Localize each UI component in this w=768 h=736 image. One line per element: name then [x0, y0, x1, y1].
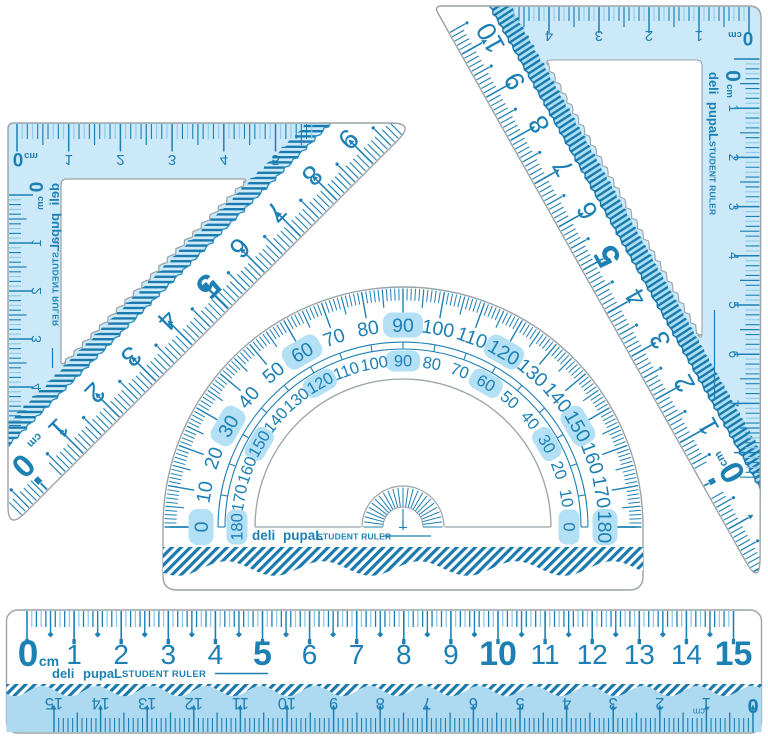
svg-text:STUDENT RULER: STUDENT RULER: [122, 669, 206, 680]
svg-text:pupaL: pupaL: [47, 213, 62, 252]
svg-text:3: 3: [29, 335, 44, 343]
svg-text:0: 0: [191, 521, 213, 532]
svg-text:3: 3: [726, 203, 741, 211]
svg-text:1: 1: [726, 104, 741, 112]
svg-text:80: 80: [421, 354, 442, 375]
svg-text:5: 5: [726, 301, 741, 309]
svg-text:2: 2: [29, 287, 44, 295]
svg-text:9: 9: [443, 639, 459, 670]
svg-text:4: 4: [29, 383, 44, 391]
svg-text:4: 4: [208, 639, 224, 670]
svg-text:0: 0: [721, 70, 744, 82]
svg-text:3: 3: [609, 694, 618, 712]
svg-text:4: 4: [220, 151, 228, 168]
svg-text:4: 4: [726, 252, 741, 260]
svg-text:6: 6: [726, 350, 741, 358]
svg-text:3: 3: [161, 639, 177, 670]
svg-text:14: 14: [671, 639, 702, 670]
svg-text:cm: cm: [693, 707, 705, 717]
svg-text:12: 12: [577, 639, 608, 670]
svg-text:4: 4: [545, 27, 553, 44]
svg-text:180: 180: [229, 513, 247, 541]
svg-text:15: 15: [45, 694, 63, 712]
svg-text:14: 14: [91, 694, 109, 712]
svg-text:0: 0: [13, 148, 24, 169]
svg-text:2: 2: [116, 151, 124, 168]
svg-text:0: 0: [743, 27, 754, 48]
svg-text:deli: deli: [706, 72, 721, 94]
svg-text:4: 4: [562, 694, 571, 712]
svg-text:2: 2: [645, 27, 653, 44]
svg-text:STUDENT RULER: STUDENT RULER: [708, 141, 718, 215]
svg-text:cm: cm: [24, 150, 38, 161]
svg-text:3: 3: [595, 27, 603, 44]
svg-text:11: 11: [232, 694, 249, 712]
svg-text:1: 1: [29, 239, 44, 247]
svg-text:3: 3: [168, 151, 176, 168]
svg-text:5: 5: [253, 635, 272, 673]
svg-text:7: 7: [422, 694, 431, 712]
svg-text:2: 2: [655, 694, 664, 712]
svg-text:0: 0: [747, 694, 758, 716]
svg-text:13: 13: [138, 694, 156, 712]
svg-text:5: 5: [271, 151, 279, 168]
svg-text:6: 6: [469, 694, 478, 712]
svg-text:0: 0: [18, 633, 39, 674]
svg-text:deli: deli: [252, 528, 275, 543]
svg-text:6: 6: [302, 639, 318, 670]
svg-text:180: 180: [593, 511, 615, 544]
svg-text:10: 10: [192, 479, 217, 504]
svg-text:1: 1: [65, 151, 73, 168]
svg-text:STUDENT RULER: STUDENT RULER: [51, 252, 61, 326]
svg-text:90: 90: [392, 315, 414, 337]
svg-text:pupaL: pupaL: [83, 666, 122, 681]
svg-text:deli: deli: [47, 183, 62, 205]
svg-text:0: 0: [560, 522, 578, 531]
svg-text:12: 12: [185, 694, 203, 712]
svg-text:90: 90: [394, 353, 412, 371]
svg-text:1: 1: [695, 27, 703, 44]
svg-text:8: 8: [396, 639, 412, 670]
svg-text:cm: cm: [35, 196, 46, 210]
svg-text:8: 8: [376, 694, 385, 712]
svg-text:0: 0: [27, 182, 48, 193]
svg-text:11: 11: [531, 639, 560, 670]
svg-text:cm: cm: [724, 84, 735, 98]
svg-text:15: 15: [715, 635, 753, 673]
svg-text:10: 10: [479, 635, 517, 673]
svg-text:2: 2: [726, 154, 741, 162]
svg-text:7: 7: [726, 400, 741, 408]
svg-text:13: 13: [624, 639, 655, 670]
svg-text:STUDENT RULER: STUDENT RULER: [317, 532, 391, 542]
svg-text:10: 10: [278, 694, 296, 712]
svg-text:deli: deli: [52, 666, 74, 681]
svg-text:5: 5: [515, 694, 524, 712]
svg-text:pupaL: pupaL: [706, 102, 721, 141]
svg-text:7: 7: [349, 639, 365, 670]
svg-text:80: 80: [355, 316, 380, 341]
svg-text:cm: cm: [728, 29, 742, 40]
svg-text:9: 9: [329, 694, 338, 712]
svg-text:10: 10: [556, 488, 577, 509]
